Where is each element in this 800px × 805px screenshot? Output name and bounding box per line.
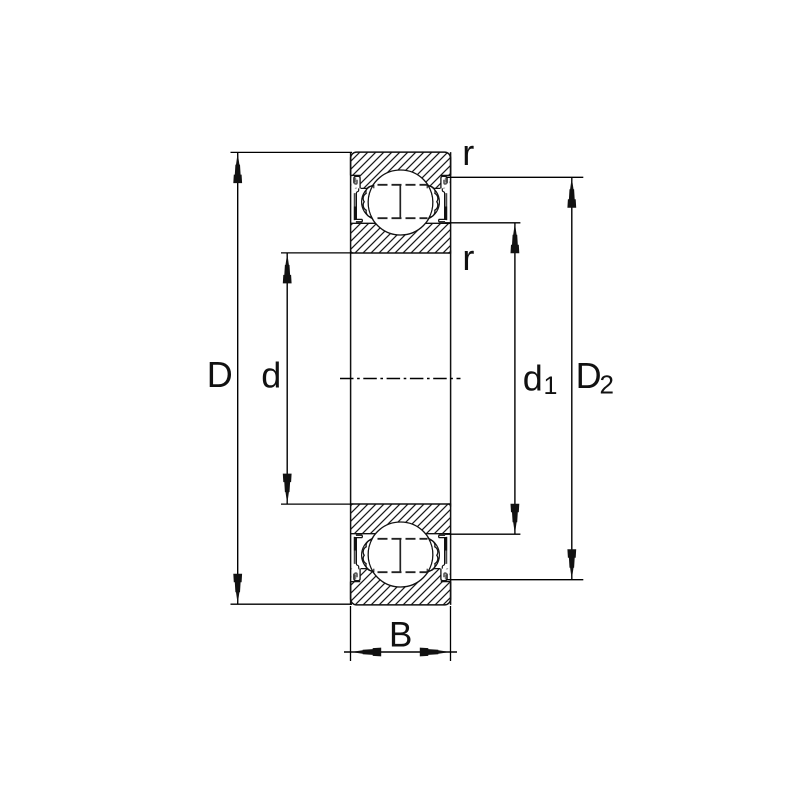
svg-text:D: D bbox=[207, 354, 233, 395]
svg-text:r: r bbox=[462, 237, 474, 278]
svg-text:1: 1 bbox=[544, 372, 558, 400]
svg-text:B: B bbox=[389, 615, 412, 654]
svg-text:r: r bbox=[462, 132, 474, 173]
svg-text:d: d bbox=[523, 358, 543, 399]
svg-text:d: d bbox=[261, 354, 281, 395]
svg-text:D: D bbox=[576, 355, 602, 396]
svg-text:2: 2 bbox=[600, 370, 614, 400]
